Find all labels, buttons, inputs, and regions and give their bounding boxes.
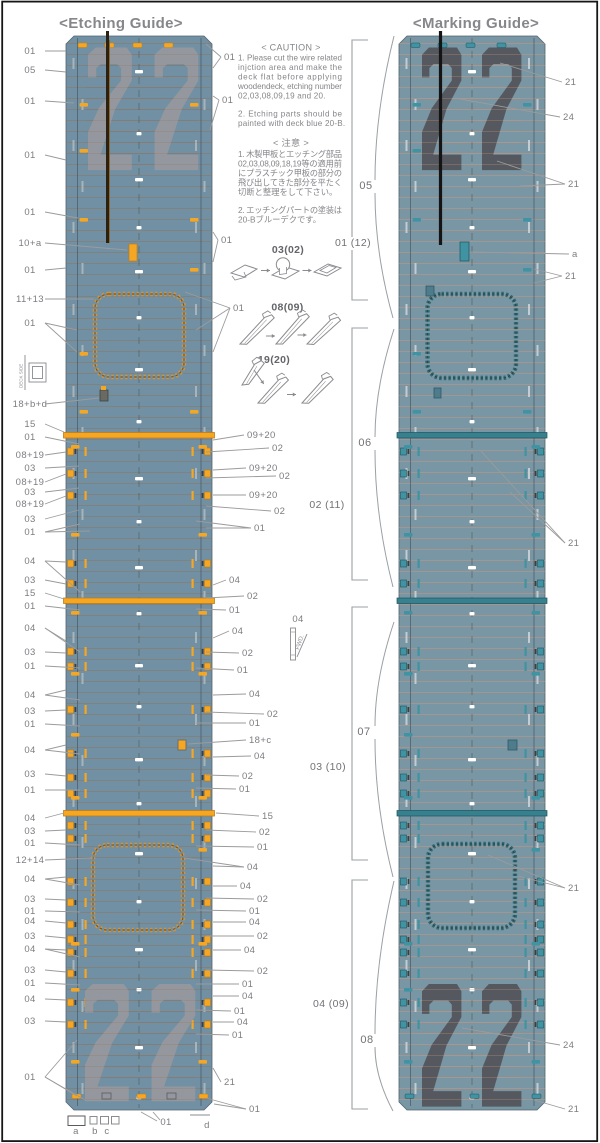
svg-text:02,03,08,09,18,19等の適用前: 02,03,08,09,18,19等の適用前 (238, 159, 342, 169)
svg-text:a: a (73, 1126, 79, 1137)
svg-text:04: 04 (24, 690, 35, 701)
svg-text:09+20: 09+20 (247, 430, 276, 441)
svg-text:<Etching Guide>: <Etching Guide> (59, 15, 183, 32)
svg-text:01: 01 (24, 207, 35, 218)
svg-text:08+19: 08+19 (16, 499, 45, 510)
svg-text:painted with deck blue 20-B.: painted with deck blue 20-B. (238, 119, 345, 128)
svg-text:08+19: 08+19 (16, 450, 45, 461)
svg-text:01: 01 (249, 1104, 260, 1115)
svg-text:02: 02 (272, 443, 283, 454)
svg-text:01: 01 (24, 96, 35, 107)
svg-text:deck flat before applying: deck flat before applying (238, 73, 342, 82)
svg-text:02: 02 (242, 771, 253, 782)
svg-text:04: 04 (249, 917, 260, 928)
svg-text:02: 02 (257, 894, 268, 905)
svg-text:04: 04 (24, 623, 35, 634)
svg-text:04: 04 (232, 626, 243, 637)
svg-text:01: 01 (24, 265, 35, 276)
svg-text:12+14: 12+14 (16, 855, 45, 866)
svg-text:01: 01 (249, 718, 260, 729)
svg-text:24: 24 (563, 112, 574, 123)
svg-text:05: 05 (24, 65, 35, 76)
svg-text:21: 21 (565, 271, 576, 282)
svg-text:01: 01 (221, 235, 232, 246)
svg-text:03: 03 (24, 894, 35, 905)
svg-text:01: 01 (242, 979, 253, 990)
svg-text:02 (11): 02 (11) (309, 499, 344, 511)
svg-text:01: 01 (233, 303, 244, 314)
svg-text:09+20: 09+20 (249, 463, 278, 474)
svg-text:01: 01 (249, 906, 260, 917)
svg-text:04: 04 (244, 945, 255, 956)
svg-text:01: 01 (224, 52, 235, 63)
svg-text:03: 03 (24, 826, 35, 837)
svg-text:b: b (92, 1126, 98, 1137)
svg-text:d: d (204, 1120, 210, 1131)
svg-text:04: 04 (24, 813, 35, 824)
svg-text:02: 02 (259, 827, 270, 838)
svg-text:04: 04 (229, 575, 240, 586)
svg-text:21: 21 (568, 179, 579, 190)
svg-text:1. Please cut the wire related: 1. Please cut the wire related (238, 54, 342, 63)
svg-text:08: 08 (360, 1034, 373, 1046)
svg-text:飛び出してきた部分を平たく: 飛び出してきた部分を平たく (238, 178, 342, 188)
svg-text:01: 01 (24, 150, 35, 161)
svg-text:04: 04 (242, 991, 253, 1002)
svg-text:01: 01 (239, 784, 250, 795)
svg-text:01: 01 (24, 978, 35, 989)
svg-text:01: 01 (24, 46, 35, 57)
svg-text:01: 01 (254, 523, 265, 534)
svg-text:20-Bブルーデクです。: 20-Bブルーデクです。 (238, 215, 321, 225)
svg-text:2. Etching parts should be: 2. Etching parts should be (238, 110, 342, 119)
svg-text:<Marking Guide>: <Marking Guide> (413, 15, 539, 32)
svg-text:09+20: 09+20 (249, 490, 278, 501)
svg-text:DECK SIDE: DECK SIDE (19, 364, 24, 388)
svg-text:01: 01 (24, 1072, 35, 1083)
svg-text:11+13: 11+13 (16, 294, 44, 305)
svg-text:04: 04 (237, 1017, 248, 1028)
svg-text:04: 04 (292, 614, 303, 625)
svg-text:< CAUTION >: < CAUTION > (261, 43, 320, 53)
svg-text:01: 01 (160, 1117, 171, 1128)
svg-text:04: 04 (254, 751, 265, 762)
svg-text:03: 03 (24, 463, 35, 474)
svg-text:21: 21 (224, 1077, 235, 1088)
svg-text:21: 21 (568, 1104, 579, 1115)
svg-text:2. エッチングパートの塗装は: 2. エッチングパートの塗装は (238, 205, 342, 215)
svg-text:18+b+d: 18+b+d (13, 399, 48, 410)
svg-text:injction area and make the: injction area and make the (238, 63, 342, 72)
svg-text:03: 03 (24, 647, 35, 658)
svg-text:01: 01 (24, 719, 35, 730)
svg-text:woodendeck, etching number: woodendeck, etching number (237, 82, 342, 91)
svg-text:24: 24 (563, 1040, 574, 1051)
svg-text:03: 03 (24, 575, 35, 586)
svg-text:切断と整理をして下さい。: 切断と整理をして下さい。 (238, 187, 337, 197)
svg-text:04: 04 (24, 916, 35, 927)
svg-text:10+a: 10+a (19, 238, 42, 249)
svg-text:03: 03 (24, 706, 35, 717)
svg-text:15: 15 (24, 588, 35, 599)
svg-text:02: 02 (257, 931, 268, 942)
svg-text:01: 01 (24, 838, 35, 849)
svg-text:03: 03 (24, 514, 35, 525)
svg-text:04: 04 (24, 874, 35, 885)
svg-text:04: 04 (249, 689, 260, 700)
svg-text:21: 21 (568, 538, 579, 549)
svg-text:02: 02 (267, 709, 278, 720)
svg-text:01: 01 (232, 1030, 243, 1041)
svg-text:04: 04 (24, 745, 35, 756)
svg-text:03(02): 03(02) (272, 244, 304, 256)
svg-text:a: a (572, 249, 578, 260)
svg-text:03 (10): 03 (10) (310, 761, 346, 773)
svg-text:04: 04 (24, 994, 35, 1005)
svg-text:03: 03 (24, 1016, 35, 1027)
svg-text:01: 01 (24, 432, 35, 443)
svg-text:05: 05 (359, 180, 372, 192)
svg-text:01: 01 (24, 661, 35, 672)
svg-text:03: 03 (24, 965, 35, 976)
svg-text:01: 01 (24, 601, 35, 612)
svg-text:02,03,08,09,19 and 20.: 02,03,08,09,19 and 20. (238, 92, 326, 101)
svg-text:04 (09): 04 (09) (313, 998, 349, 1010)
svg-text:08(09): 08(09) (271, 302, 303, 314)
svg-text:04: 04 (24, 556, 35, 567)
svg-text:06: 06 (358, 437, 371, 449)
svg-text:18+c: 18+c (249, 735, 271, 746)
svg-text:1. 木製甲板とエッチング部品: 1. 木製甲板とエッチング部品 (238, 149, 342, 159)
svg-text:01: 01 (222, 95, 233, 106)
svg-text:04: 04 (240, 881, 251, 892)
svg-text:01: 01 (229, 605, 240, 616)
svg-text:< 注意 >: < 注意 > (273, 137, 309, 148)
svg-text:04: 04 (247, 862, 258, 873)
svg-text:21: 21 (568, 883, 579, 894)
svg-text:21: 21 (565, 77, 576, 88)
svg-text:02: 02 (242, 648, 253, 659)
svg-text:03: 03 (24, 487, 35, 498)
svg-text:02: 02 (279, 471, 290, 482)
svg-text:01: 01 (237, 665, 248, 676)
svg-text:01: 01 (24, 527, 35, 538)
svg-text:04: 04 (24, 944, 35, 955)
svg-text:02: 02 (274, 506, 285, 517)
svg-text:c: c (104, 1126, 109, 1137)
svg-text:02: 02 (247, 591, 258, 602)
svg-text:03: 03 (24, 769, 35, 780)
svg-text:07: 07 (357, 726, 370, 738)
svg-text:01: 01 (234, 1006, 245, 1017)
svg-text:01: 01 (24, 785, 35, 796)
svg-text:15: 15 (262, 811, 273, 822)
svg-text:01: 01 (257, 842, 268, 853)
svg-text:01 (12): 01 (12) (335, 237, 371, 249)
svg-text:02: 02 (257, 966, 268, 977)
svg-text:にプラスチック甲板の部分の: にプラスチック甲板の部分の (238, 168, 342, 178)
svg-text:03: 03 (24, 931, 35, 942)
svg-text:15: 15 (24, 419, 35, 430)
svg-text:01: 01 (24, 318, 35, 329)
